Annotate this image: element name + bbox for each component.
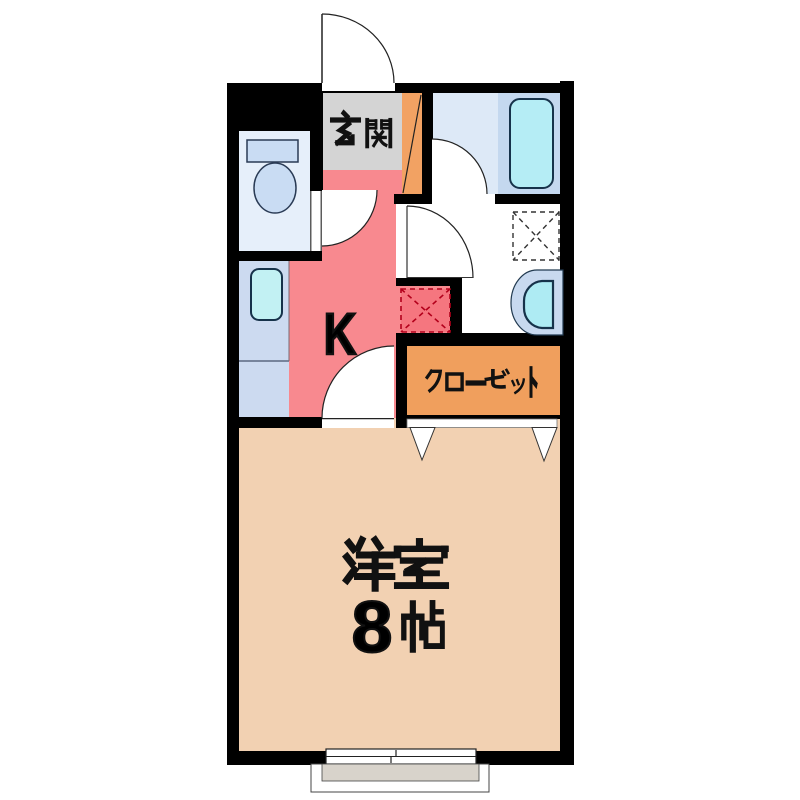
svg-text:K: K (324, 303, 357, 368)
svg-text:8: 8 (352, 588, 393, 668)
